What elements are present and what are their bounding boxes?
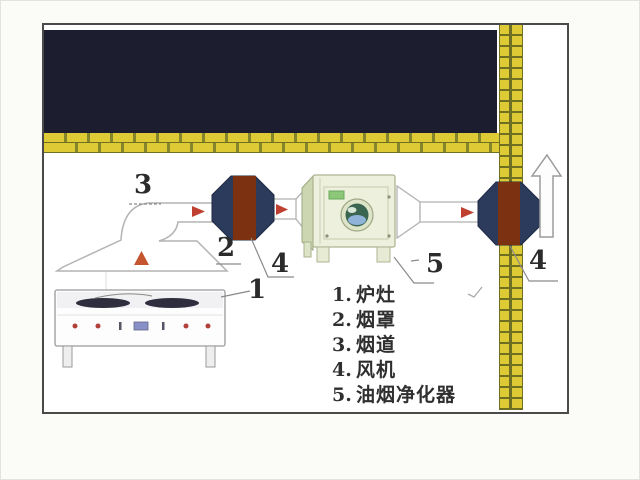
fan-left — [212, 176, 274, 240]
legend-number: 2. — [332, 309, 356, 331]
fan-core — [233, 176, 256, 240]
stove-knob — [96, 324, 101, 329]
fan-core — [498, 182, 520, 245]
fan-right — [478, 182, 540, 245]
hood-and-flue-duct — [57, 203, 227, 271]
legend-number: 3. — [332, 334, 356, 356]
stove-leg — [206, 346, 215, 367]
burner — [145, 298, 199, 308]
oil-fume-purifier — [302, 175, 395, 262]
legend-label: 烟罩 — [356, 305, 396, 332]
legend-label: 炉灶 — [356, 280, 396, 307]
callout-flue: 3 — [134, 172, 152, 198]
stove-knob — [184, 324, 189, 329]
legend-label: 风机 — [356, 355, 396, 382]
stove-knob — [73, 324, 78, 329]
callout-fan-left: 4 — [271, 251, 289, 277]
burner — [76, 298, 130, 308]
legend-number: 1. — [332, 284, 356, 306]
legend-item-stove: 1. 炉灶 — [332, 280, 456, 305]
scanned-diagram-page: 3 2 4 1 5 4 1. 炉灶 2. 烟罩 3. 烟道 4. 风机 5. 油… — [0, 0, 640, 480]
callout-hood: 2 — [217, 235, 235, 261]
purifier-side-panel — [302, 176, 313, 250]
legend-label: 油烟净化器 — [356, 380, 456, 407]
stove-leg — [63, 346, 72, 367]
purifier-label-chip — [329, 191, 344, 199]
legend-number: 5. — [332, 384, 356, 406]
scan-mark — [468, 287, 482, 297]
legend-item-flue: 3. 烟道 — [332, 330, 456, 355]
legend: 1. 炉灶 2. 烟罩 3. 烟道 4. 风机 5. 油烟净化器 — [332, 280, 456, 405]
legend-label: 烟道 — [356, 330, 396, 357]
stove-knob — [206, 324, 211, 329]
stove — [55, 272, 225, 367]
legend-item-fan: 4. 风机 — [332, 355, 456, 380]
legend-number: 4. — [332, 359, 356, 381]
stove-display — [134, 322, 148, 330]
callout-stove: 1 — [248, 277, 266, 303]
legend-item-hood: 2. 烟罩 — [332, 305, 456, 330]
callout-fan-right: 4 — [529, 248, 547, 274]
diagram-artwork — [0, 0, 640, 480]
callout-purifier: 5 — [426, 251, 444, 277]
legend-item-purifier: 5. 油烟净化器 — [332, 380, 456, 405]
